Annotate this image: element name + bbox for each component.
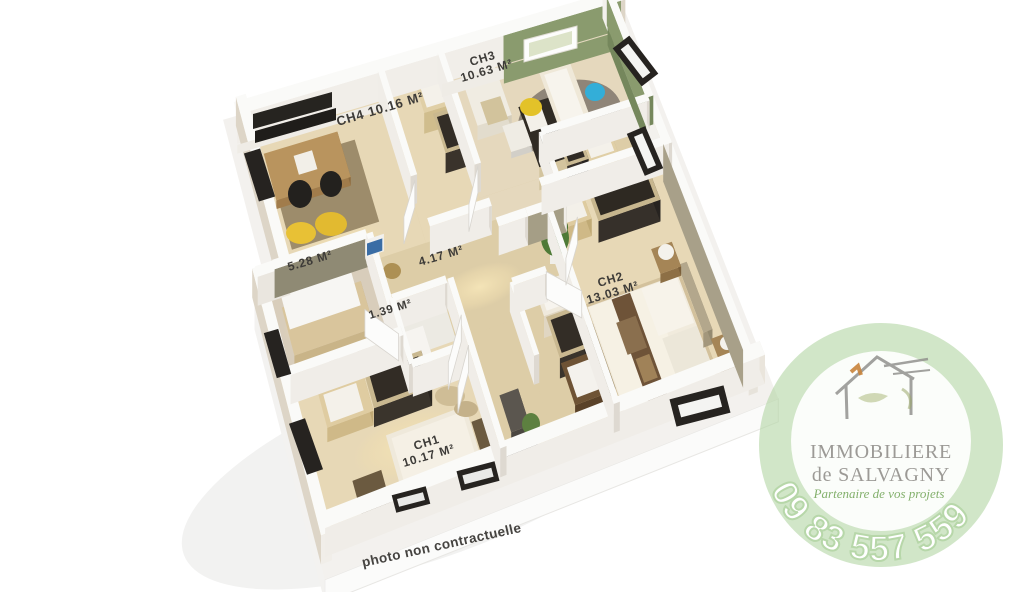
svg-text:Partenaire de vos projets: Partenaire de vos projets <box>813 486 945 501</box>
svg-text:IMMOBILIERE: IMMOBILIERE <box>810 441 952 463</box>
svg-text:de SALVAGNY: de SALVAGNY <box>812 464 950 486</box>
